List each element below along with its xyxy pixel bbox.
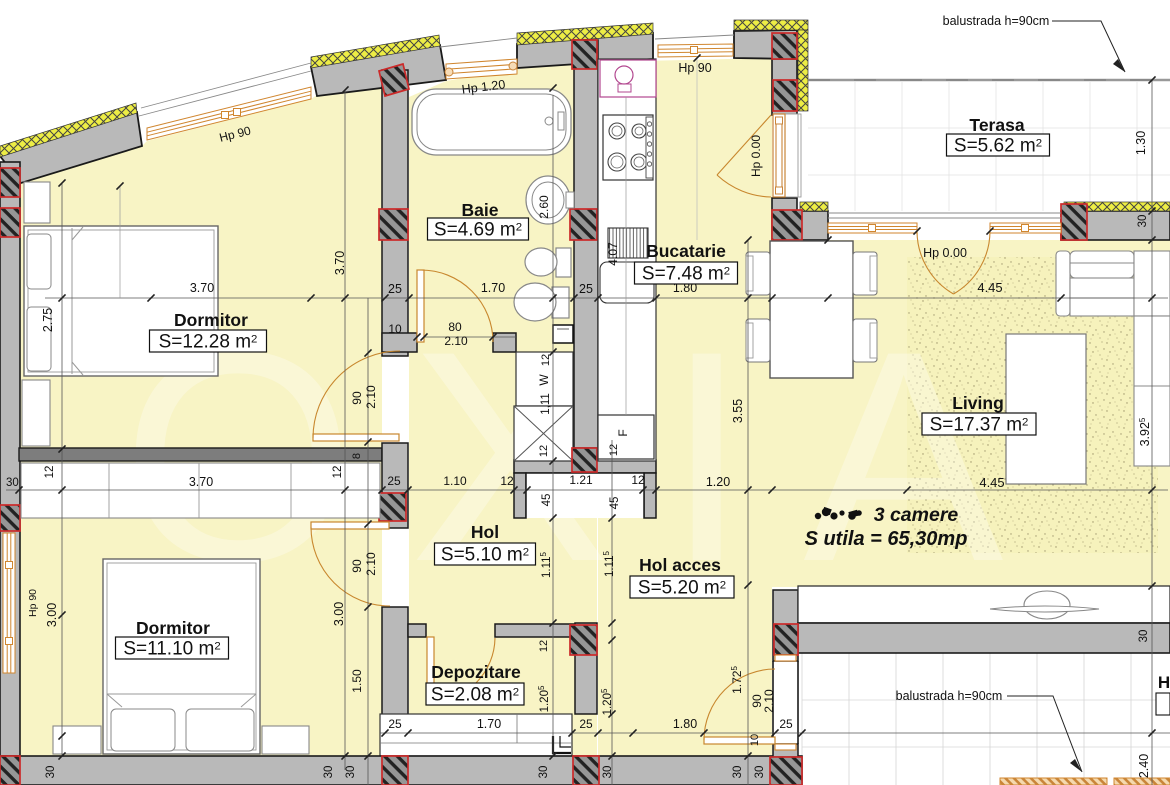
svg-text:Living: Living: [952, 393, 1004, 413]
svg-text:1,11: 1,11: [540, 393, 552, 415]
svg-text:Hol acces: Hol acces: [639, 555, 721, 575]
svg-text:12: 12: [608, 444, 620, 456]
svg-text:2.60: 2.60: [537, 195, 551, 219]
svg-text:S=2.08 m2: S=2.08 m2: [431, 684, 519, 705]
svg-text:90: 90: [350, 391, 364, 405]
svg-text:1.30: 1.30: [1134, 131, 1148, 155]
svg-text:3.70: 3.70: [189, 475, 213, 489]
svg-text:Depozitare: Depozitare: [431, 662, 521, 682]
svg-text:25: 25: [779, 717, 793, 731]
svg-text:3.55: 3.55: [731, 399, 745, 423]
svg-text:S=17.37 m2: S=17.37 m2: [930, 414, 1029, 435]
svg-text:30: 30: [1138, 630, 1150, 643]
svg-text:1.21: 1.21: [569, 473, 593, 487]
svg-text:12: 12: [538, 640, 550, 652]
svg-text:30: 30: [323, 766, 335, 779]
svg-text:balustrada h=90cm: balustrada h=90cm: [943, 14, 1050, 28]
svg-text:1.10: 1.10: [443, 474, 467, 488]
svg-text:2.10: 2.10: [364, 552, 378, 576]
svg-text:80: 80: [448, 320, 462, 334]
svg-text:30: 30: [538, 766, 550, 779]
svg-text:S=7.48 m2: S=7.48 m2: [642, 263, 730, 284]
svg-text:4.07: 4.07: [606, 242, 620, 266]
svg-text:4.45: 4.45: [977, 280, 1002, 295]
svg-text:S utila = 65,30mp: S utila = 65,30mp: [805, 528, 968, 550]
svg-text:12: 12: [332, 466, 344, 479]
svg-text:S=4.69 m2: S=4.69 m2: [434, 219, 522, 240]
svg-text:25: 25: [579, 282, 593, 296]
svg-text:10: 10: [388, 322, 402, 336]
svg-text:1.20: 1.20: [706, 475, 730, 489]
svg-text:12: 12: [538, 445, 550, 457]
svg-text:Bucatarie: Bucatarie: [646, 241, 726, 261]
svg-text:12: 12: [500, 474, 514, 488]
svg-text:2.75: 2.75: [41, 308, 55, 332]
svg-text:Dormitor: Dormitor: [136, 618, 210, 638]
svg-text:25: 25: [387, 474, 401, 488]
svg-text:2.10: 2.10: [762, 689, 776, 713]
svg-text:Baie: Baie: [462, 200, 499, 220]
svg-text:30: 30: [732, 766, 744, 779]
svg-text:12: 12: [540, 354, 552, 366]
svg-text:3.70: 3.70: [190, 281, 214, 295]
svg-text:1.70: 1.70: [477, 717, 501, 731]
svg-text:90: 90: [350, 559, 364, 573]
svg-text:Hp 0.00: Hp 0.00: [923, 246, 967, 260]
svg-text:3 camere: 3 camere: [874, 504, 959, 526]
svg-text:S=5.20 m2: S=5.20 m2: [638, 577, 726, 598]
svg-text:S=5.10 m2: S=5.10 m2: [441, 544, 529, 565]
svg-text:12: 12: [631, 473, 645, 487]
svg-text:S=11.10 m2: S=11.10 m2: [123, 638, 220, 659]
svg-text:10: 10: [749, 734, 761, 746]
svg-text:Hol: Hol: [471, 522, 499, 542]
svg-text:Hp 90: Hp 90: [678, 61, 711, 75]
svg-text:45: 45: [541, 494, 553, 507]
svg-text:25: 25: [388, 282, 402, 296]
svg-text:30: 30: [754, 766, 766, 779]
svg-text:2.40: 2.40: [1137, 754, 1151, 778]
svg-text:3.70: 3.70: [333, 251, 347, 275]
svg-text:25: 25: [388, 717, 402, 731]
svg-text:1.80: 1.80: [673, 717, 697, 731]
svg-text:30: 30: [6, 477, 19, 489]
svg-text:F: F: [616, 429, 630, 436]
svg-text:45: 45: [609, 497, 621, 510]
svg-text:30: 30: [345, 766, 357, 779]
svg-text:S=5.62 m2: S=5.62 m2: [954, 135, 1042, 156]
svg-text:H: H: [1158, 673, 1170, 692]
svg-text:30: 30: [602, 766, 614, 779]
svg-text:Terasa: Terasa: [969, 115, 1024, 135]
svg-text:S=12.28 m2: S=12.28 m2: [159, 331, 258, 352]
svg-text:W: W: [537, 374, 551, 386]
svg-text:30: 30: [45, 766, 57, 779]
svg-text:2.10: 2.10: [444, 334, 468, 348]
svg-text:3.00: 3.00: [332, 602, 346, 626]
svg-text:1.70: 1.70: [481, 281, 505, 295]
svg-text:25: 25: [579, 717, 593, 731]
svg-text:Hp 90: Hp 90: [27, 589, 39, 617]
svg-text:8: 8: [351, 453, 363, 459]
svg-text:2.10: 2.10: [364, 385, 378, 409]
svg-text:12: 12: [44, 466, 56, 479]
svg-text:3.00: 3.00: [45, 603, 59, 627]
svg-text:30: 30: [1137, 215, 1149, 228]
svg-text:Hp 0.00: Hp 0.00: [749, 135, 763, 177]
svg-text:4.45: 4.45: [979, 475, 1004, 490]
svg-text:Dormitor: Dormitor: [174, 310, 248, 330]
svg-text:balustrada h=90cm: balustrada h=90cm: [896, 689, 1003, 703]
svg-text:1.50: 1.50: [350, 669, 364, 693]
